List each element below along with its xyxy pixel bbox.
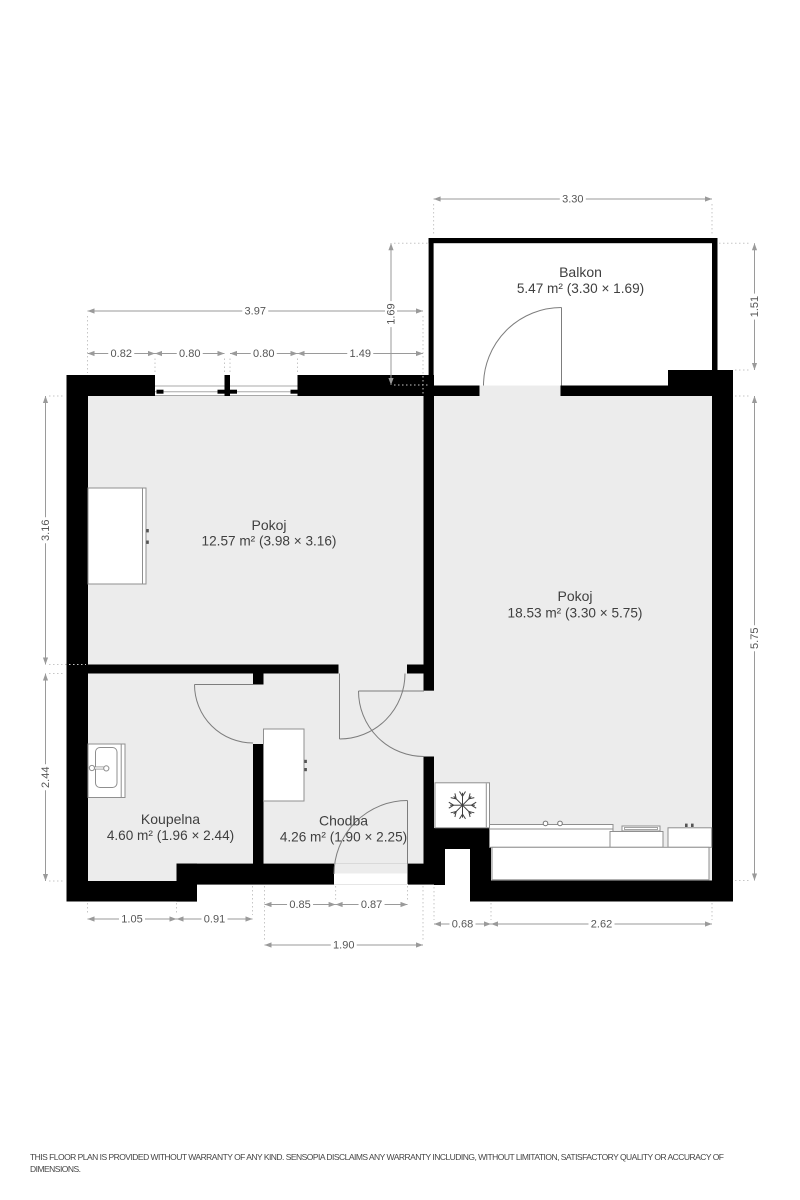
svg-text:Koupelna: Koupelna <box>141 811 200 827</box>
svg-text:4.60 m² (1.96 × 2.44): 4.60 m² (1.96 × 2.44) <box>107 828 234 843</box>
svg-text:1.69: 1.69 <box>386 303 398 324</box>
svg-text:THIS FLOOR PLAN IS PROVIDED WI: THIS FLOOR PLAN IS PROVIDED WITHOUT WARR… <box>30 1152 724 1162</box>
svg-text:Balkon: Balkon <box>559 264 602 280</box>
svg-text:3.30: 3.30 <box>562 194 583 206</box>
svg-text:1.51: 1.51 <box>749 296 761 317</box>
svg-text:18.53 m² (3.30 × 5.75): 18.53 m² (3.30 × 5.75) <box>508 606 643 621</box>
svg-text:4.26 m² (1.90 × 2.25): 4.26 m² (1.90 × 2.25) <box>280 830 407 845</box>
svg-text:1.90: 1.90 <box>333 940 354 952</box>
svg-text:Chodba: Chodba <box>319 813 368 829</box>
svg-text:0.80: 0.80 <box>253 348 274 360</box>
svg-text:2.44: 2.44 <box>40 767 52 788</box>
svg-text:3.97: 3.97 <box>245 306 266 318</box>
svg-text:0.82: 0.82 <box>111 348 132 360</box>
svg-text:0.91: 0.91 <box>204 914 225 926</box>
svg-text:1.05: 1.05 <box>121 914 142 926</box>
svg-text:Pokoj: Pokoj <box>557 588 592 604</box>
svg-text:DIMENSIONS.: DIMENSIONS. <box>30 1164 81 1174</box>
svg-text:2.62: 2.62 <box>591 919 612 931</box>
svg-text:3.16: 3.16 <box>40 520 52 541</box>
svg-text:0.85: 0.85 <box>289 899 310 911</box>
svg-text:5.47 m² (3.30 × 1.69): 5.47 m² (3.30 × 1.69) <box>517 281 644 296</box>
svg-text:5.75: 5.75 <box>749 628 761 649</box>
svg-text:12.57 m² (3.98 × 3.16): 12.57 m² (3.98 × 3.16) <box>202 534 337 549</box>
svg-text:Pokoj: Pokoj <box>251 517 286 533</box>
svg-text:0.80: 0.80 <box>179 348 200 360</box>
svg-text:0.87: 0.87 <box>361 899 382 911</box>
svg-text:0.68: 0.68 <box>452 919 473 931</box>
svg-text:1.49: 1.49 <box>350 348 371 360</box>
